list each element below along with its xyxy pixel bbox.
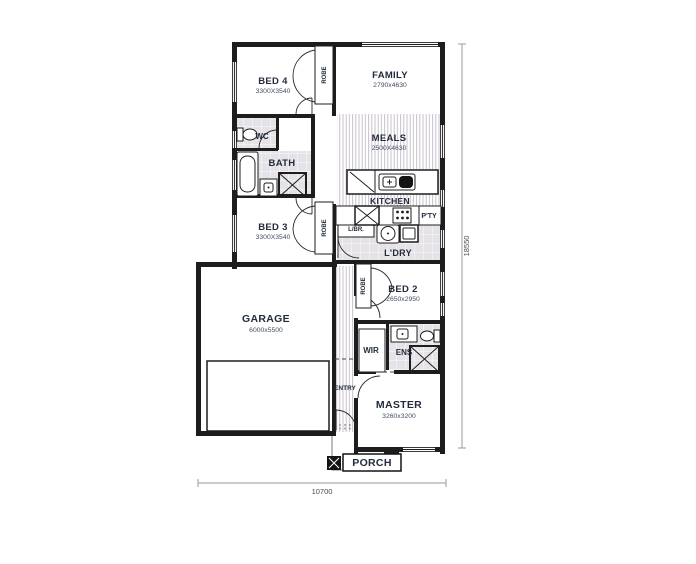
meals-size: 2500X4630 (372, 145, 407, 152)
laundry-trough-icon (377, 225, 399, 243)
bath-label: BATH (269, 158, 296, 169)
floor-plan-drawing: BED 4 3300X3540 FAMILY 2790x4630 MEALS 2… (0, 0, 696, 564)
kitchen-island (347, 170, 438, 194)
wall-garage-left (196, 262, 201, 436)
garage-size: 6000x5500 (249, 327, 283, 334)
cooktop-icon (393, 208, 411, 223)
bed4-label: BED 4 (258, 76, 288, 87)
wall-bed2-bottom (354, 320, 441, 324)
bed3-door-arc (296, 198, 312, 214)
wall-garage-top (196, 262, 337, 267)
window (232, 62, 237, 102)
washer-icon (400, 225, 418, 242)
meals-label: MEALS (372, 133, 407, 144)
kitchen-sink-icon (379, 174, 415, 190)
bath-vanity-icon (260, 179, 277, 196)
ens-label: ENS (396, 348, 413, 357)
window (440, 125, 445, 158)
bed4-size: 3300X3540 (256, 88, 291, 95)
family-label: FAMILY (372, 70, 408, 81)
wall-entry-left (332, 262, 336, 436)
entry-label: ENTRY (334, 385, 356, 392)
family-size: 2790x4630 (373, 82, 407, 89)
laundry-label: L'DRY (384, 248, 412, 258)
bed2-label: BED 2 (388, 284, 417, 295)
window (232, 131, 237, 148)
bed4-robe-bifold (293, 50, 315, 102)
wall-bed4-bottom (232, 114, 314, 118)
linen-label: L/BR. (348, 227, 364, 233)
master-label: MASTER (376, 399, 422, 411)
bed3-size: 3300X3540 (256, 234, 291, 241)
wall-hall-left (311, 114, 315, 198)
wc-label: WC (255, 132, 269, 141)
toilet-icon (237, 128, 257, 141)
porch-post-icon (327, 456, 341, 470)
kitchen-label: KITCHEN (370, 196, 410, 206)
garage-door-panel (207, 361, 329, 431)
bathtub-icon (237, 152, 258, 196)
pantry-label: P'TY (421, 213, 437, 220)
window (440, 303, 445, 316)
garage-label: GARAGE (242, 313, 290, 325)
ens-toilet-icon (421, 330, 441, 342)
wall-wir-ens-divider (386, 324, 389, 372)
window (403, 447, 435, 452)
window (440, 230, 445, 248)
ens-vanity-icon (391, 326, 417, 342)
window (232, 160, 237, 190)
master-door-arc (358, 376, 380, 398)
bed2-size: 2650x2950 (386, 296, 420, 303)
master-size: 3260x3200 (382, 413, 416, 420)
porch-label: PORCH (352, 457, 391, 469)
floor-plan-page: BED 4 3300X3540 FAMILY 2790x4630 MEALS 2… (0, 0, 696, 564)
window (232, 215, 237, 252)
window (440, 272, 445, 296)
wir-label: WIR (363, 346, 379, 355)
window (440, 190, 445, 207)
dim-height-text: 18550 (462, 236, 471, 257)
entry-timber-floor (336, 266, 354, 432)
bed3-robe-label: ROBE (322, 219, 328, 236)
bed3-label: BED 3 (258, 222, 287, 233)
wall-wc-bath-divider (234, 148, 278, 151)
window (362, 42, 438, 47)
dim-width-text: 10700 (312, 487, 333, 496)
bed2-robe-label: ROBE (361, 277, 367, 294)
wall-laundry-bed2 (336, 260, 441, 264)
bed4-robe-label: ROBE (322, 66, 328, 83)
wall-wc-right (276, 116, 279, 150)
